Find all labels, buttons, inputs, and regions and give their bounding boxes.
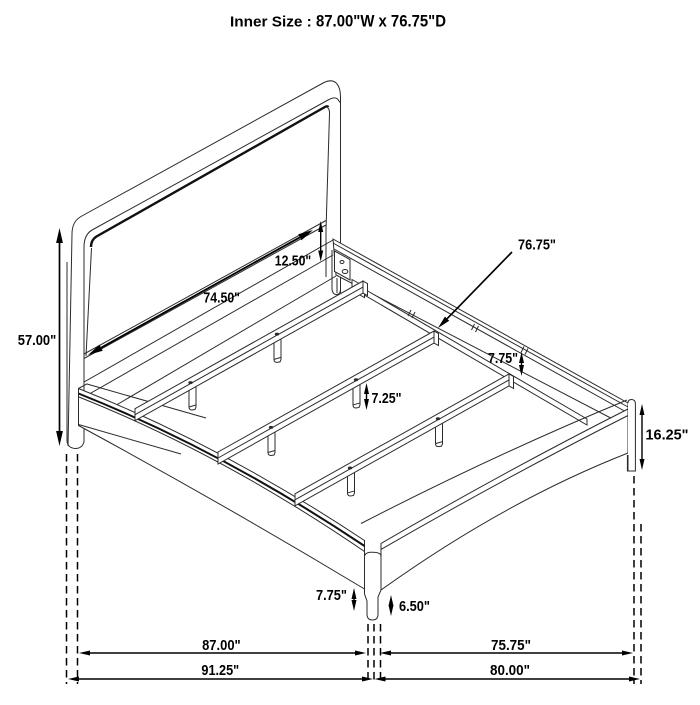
- svg-text:Inner Size : 87.00"W x 76.75"D: Inner Size : 87.00"W x 76.75"D: [230, 12, 446, 31]
- svg-text:6.50": 6.50": [399, 599, 430, 615]
- svg-text:87.00": 87.00": [202, 638, 241, 654]
- svg-text:91.25": 91.25": [201, 663, 239, 679]
- svg-text:76.75": 76.75": [518, 238, 556, 254]
- svg-text:75.75": 75.75": [491, 638, 531, 654]
- svg-text:7.75": 7.75": [316, 588, 347, 604]
- svg-text:80.00": 80.00": [490, 663, 530, 679]
- svg-text:74.50": 74.50": [203, 291, 240, 307]
- svg-text:57.00": 57.00": [18, 333, 57, 349]
- svg-text:7.75": 7.75": [488, 351, 518, 367]
- svg-text:12.50": 12.50": [275, 254, 312, 270]
- svg-text:7.25": 7.25": [372, 391, 402, 407]
- svg-text:16.25": 16.25": [646, 428, 689, 444]
